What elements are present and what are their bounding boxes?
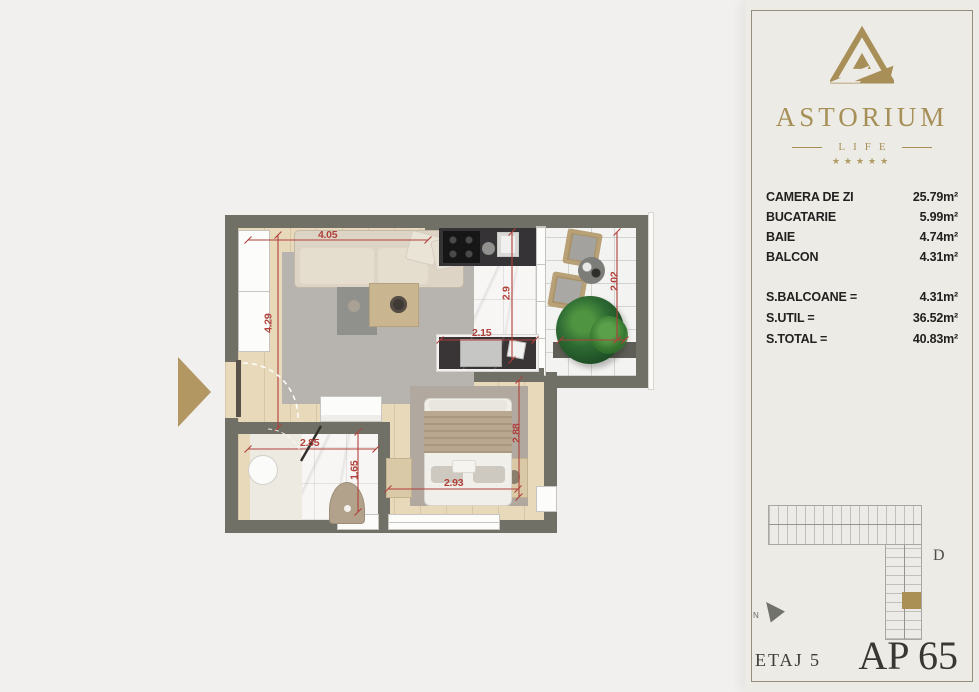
brand-sub-row: LIFE bbox=[745, 141, 979, 153]
bed-blanket bbox=[424, 411, 512, 453]
floor-label: ETAJ 5 bbox=[755, 650, 821, 671]
info-panel: ASTORIUM LIFE ★★★★★ CAMERA DE ZI 25.79m²… bbox=[745, 0, 979, 692]
dim-sleeping-depth: 2.88 bbox=[511, 424, 522, 443]
living-window bbox=[238, 230, 270, 352]
room-label: CAMERA DE ZI bbox=[766, 190, 853, 204]
brand-stars: ★★★★★ bbox=[745, 156, 979, 167]
dim-bathroom-width: 2.85 bbox=[300, 438, 319, 449]
section-label: D bbox=[933, 547, 945, 565]
kitchen-appliance bbox=[460, 339, 502, 367]
sofa-cushion bbox=[300, 248, 374, 284]
total-label: S.TOTAL = bbox=[766, 332, 827, 346]
brand-line bbox=[902, 147, 932, 148]
dim-living-width: 4.05 bbox=[318, 230, 337, 241]
north-label: N bbox=[753, 611, 759, 620]
sleeping-window bbox=[388, 514, 500, 530]
room-row: BUCATARIE 5.99m² bbox=[766, 210, 958, 224]
room-value: 25.79m² bbox=[913, 190, 958, 204]
building-keyplan bbox=[768, 505, 948, 640]
entrance-door-leaf bbox=[236, 360, 241, 417]
room-label: BUCATARIE bbox=[766, 210, 836, 224]
room-label: BAIE bbox=[766, 230, 795, 244]
balcony-plant-leaves bbox=[590, 316, 628, 354]
kitchen-hood bbox=[482, 242, 495, 255]
astorium-logo-icon bbox=[830, 26, 894, 84]
nightstand-left bbox=[386, 458, 412, 498]
balcony-wall-right bbox=[636, 215, 648, 388]
bathroom-stool bbox=[248, 455, 278, 485]
room-row: BAIE 4.74m² bbox=[766, 230, 958, 244]
balcony-wall-bottom bbox=[545, 376, 648, 388]
floorplan-page: 4.05 4.29 2.9 2.15 2.02 2.88 2.93 2.85 1… bbox=[0, 0, 979, 692]
room-value: 5.99m² bbox=[920, 210, 958, 224]
total-label: S.UTIL = bbox=[766, 311, 815, 325]
bathroom-plant bbox=[244, 487, 262, 505]
room-value: 4.31m² bbox=[920, 250, 958, 264]
total-row: S.TOTAL = 40.83m² bbox=[766, 332, 958, 346]
total-row: S.BALCOANE = 4.31m² bbox=[766, 290, 958, 304]
balcony-rail bbox=[648, 212, 654, 390]
room-value: 4.74m² bbox=[920, 230, 958, 244]
dim-bathroom-depth: 1.65 bbox=[349, 461, 360, 480]
hallway-closet bbox=[320, 396, 382, 422]
bed-pillow-band bbox=[429, 400, 507, 411]
total-row: S.UTIL = 36.52m² bbox=[766, 311, 958, 325]
brand-name: ASTORIUM bbox=[745, 102, 979, 133]
room-row: CAMERA DE ZI 25.79m² bbox=[766, 190, 958, 204]
north-arrow-icon: N bbox=[755, 598, 781, 624]
entrance-arrow-icon bbox=[178, 357, 211, 427]
total-value: 40.83m² bbox=[913, 332, 958, 346]
balcony-table bbox=[578, 257, 605, 284]
apartment-label: AP 65 bbox=[843, 632, 958, 679]
dim-living-height: 4.29 bbox=[263, 314, 274, 333]
stove bbox=[443, 231, 480, 263]
bed-pillow bbox=[473, 466, 505, 483]
dim-sleeping-width: 2.93 bbox=[444, 478, 463, 489]
dim-kitchen-depth: 2.9 bbox=[502, 286, 513, 300]
dim-balcony-depth: 2.02 bbox=[609, 272, 620, 291]
bathroom-wall-top bbox=[238, 422, 390, 434]
decor-bowl bbox=[390, 296, 407, 313]
brand-line bbox=[792, 147, 822, 148]
kitchen-sink bbox=[497, 232, 519, 257]
total-label: S.BALCOANE = bbox=[766, 290, 857, 304]
decor-sprig bbox=[348, 300, 360, 312]
total-value: 4.31m² bbox=[920, 290, 958, 304]
dim-kitchen-width: 2.15 bbox=[472, 328, 491, 339]
brand-sub: LIFE bbox=[830, 141, 893, 153]
keyplan-highlight-unit bbox=[902, 592, 921, 609]
room-label: BALCON bbox=[766, 250, 818, 264]
total-value: 36.52m² bbox=[913, 311, 958, 325]
vanity-faucet bbox=[344, 505, 351, 512]
room-row: BALCON 4.31m² bbox=[766, 250, 958, 264]
keyplan-top-wing bbox=[768, 505, 922, 545]
side-window bbox=[536, 486, 557, 512]
bed-pillow-center bbox=[452, 460, 476, 473]
kitchen-small-sink bbox=[507, 340, 527, 360]
